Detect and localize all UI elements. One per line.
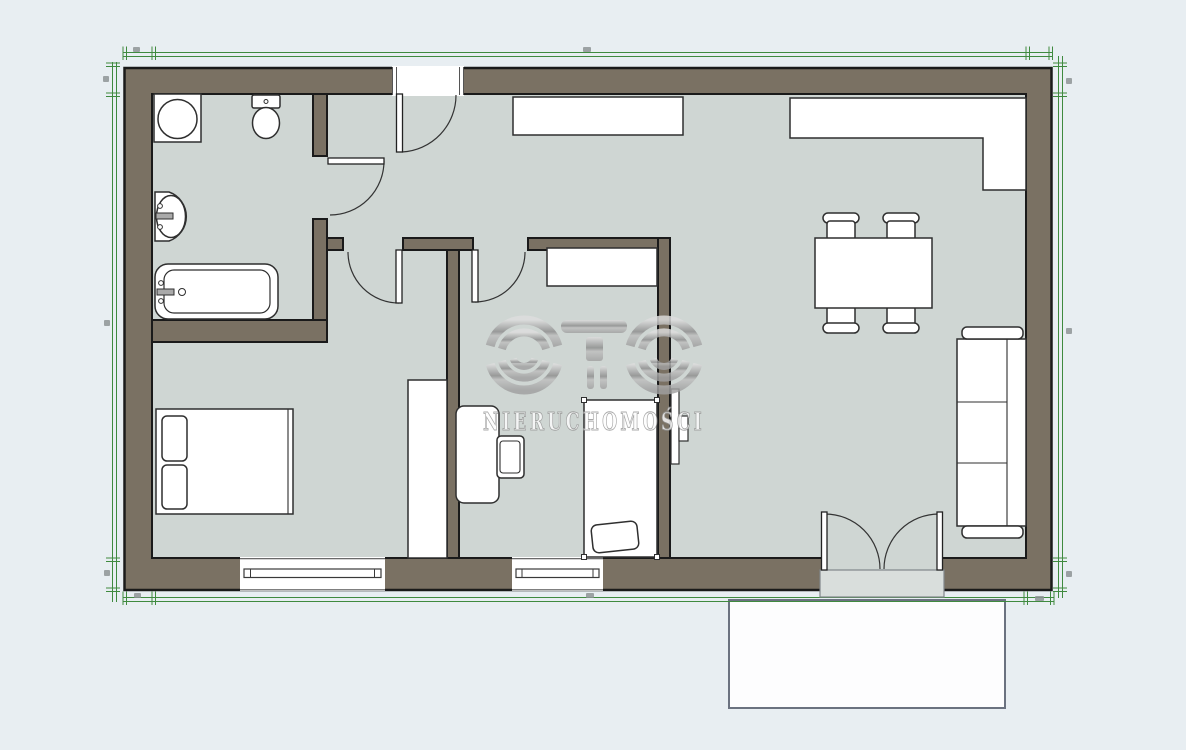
sofa-armrest: [962, 327, 1023, 339]
window-bedroom: [240, 557, 385, 591]
wall-bedroom-divider: [447, 250, 459, 558]
double-bed: [156, 409, 293, 514]
pillow: [162, 416, 187, 461]
entrance-opening: [392, 66, 464, 96]
floor-plan-page: NIERUCHOMOŚCI: [0, 0, 1186, 750]
sofa-armrest: [962, 526, 1023, 538]
terrace: [729, 600, 1005, 708]
washing-machine: [154, 94, 201, 142]
wardrobe-living: [513, 97, 683, 135]
wall-hall-south: [403, 238, 473, 250]
wall-bathroom-east-upper: [313, 94, 327, 156]
dining-chair: [887, 306, 915, 325]
dining-chair: [827, 221, 855, 240]
dining-table: [815, 238, 932, 308]
door-threshold: [820, 570, 944, 597]
pillow: [591, 521, 640, 554]
floor-plan-drawing: NIERUCHOMOŚCI: [0, 0, 1186, 750]
pillow: [162, 465, 187, 509]
watermark: NIERUCHOMOŚCI: [483, 320, 705, 436]
balcony-door-right-leaf: [937, 512, 943, 570]
dining-chair: [827, 306, 855, 325]
window-middle-room: [512, 557, 603, 591]
dining-chair: [887, 221, 915, 240]
toilet: [252, 95, 280, 139]
cabinet-middle-room: [547, 248, 657, 286]
wall-hall-south-stub: [327, 238, 343, 250]
balcony-door-left-leaf: [822, 512, 828, 570]
sofa: [957, 327, 1026, 538]
dining-chair: [823, 323, 859, 333]
bathtub: [155, 264, 278, 319]
wall-bathroom-south: [152, 320, 327, 342]
desk-chair: [497, 436, 524, 478]
dining-chair: [883, 323, 919, 333]
watermark-text: NIERUCHOMOŚCI: [483, 407, 705, 436]
wardrobe-bedroom: [408, 380, 447, 558]
